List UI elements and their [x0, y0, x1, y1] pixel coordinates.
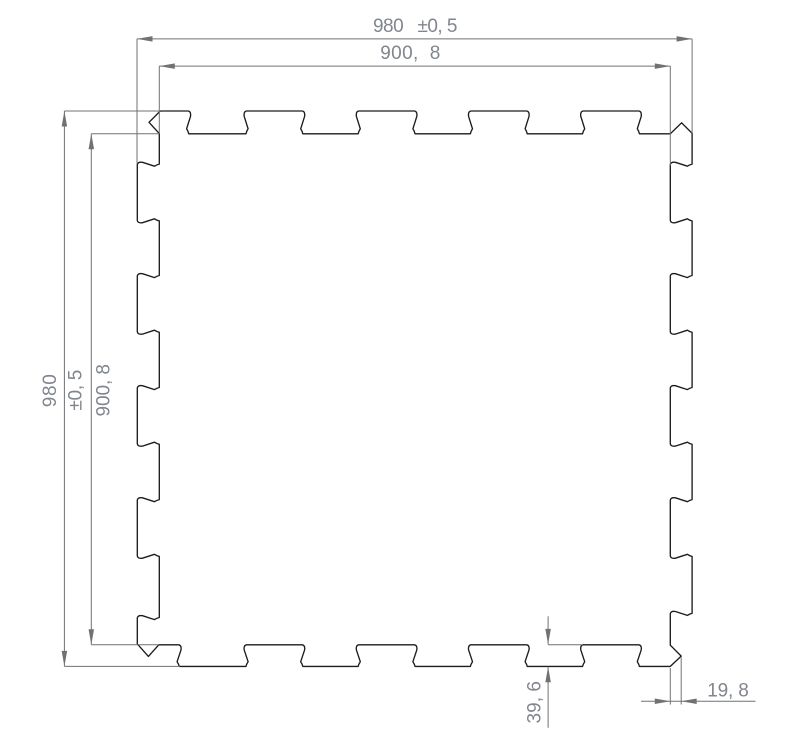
svg-text:39, 6: 39, 6	[524, 681, 545, 724]
svg-text:±0, 5: ±0, 5	[65, 370, 86, 411]
svg-text:19, 8: 19, 8	[707, 681, 749, 702]
svg-text:900, 8: 900, 8	[94, 364, 115, 417]
svg-text:980: 980	[40, 374, 61, 407]
svg-text:980 ±0, 5: 980 ±0, 5	[373, 16, 458, 37]
svg-text:900, 8: 900, 8	[380, 43, 440, 64]
